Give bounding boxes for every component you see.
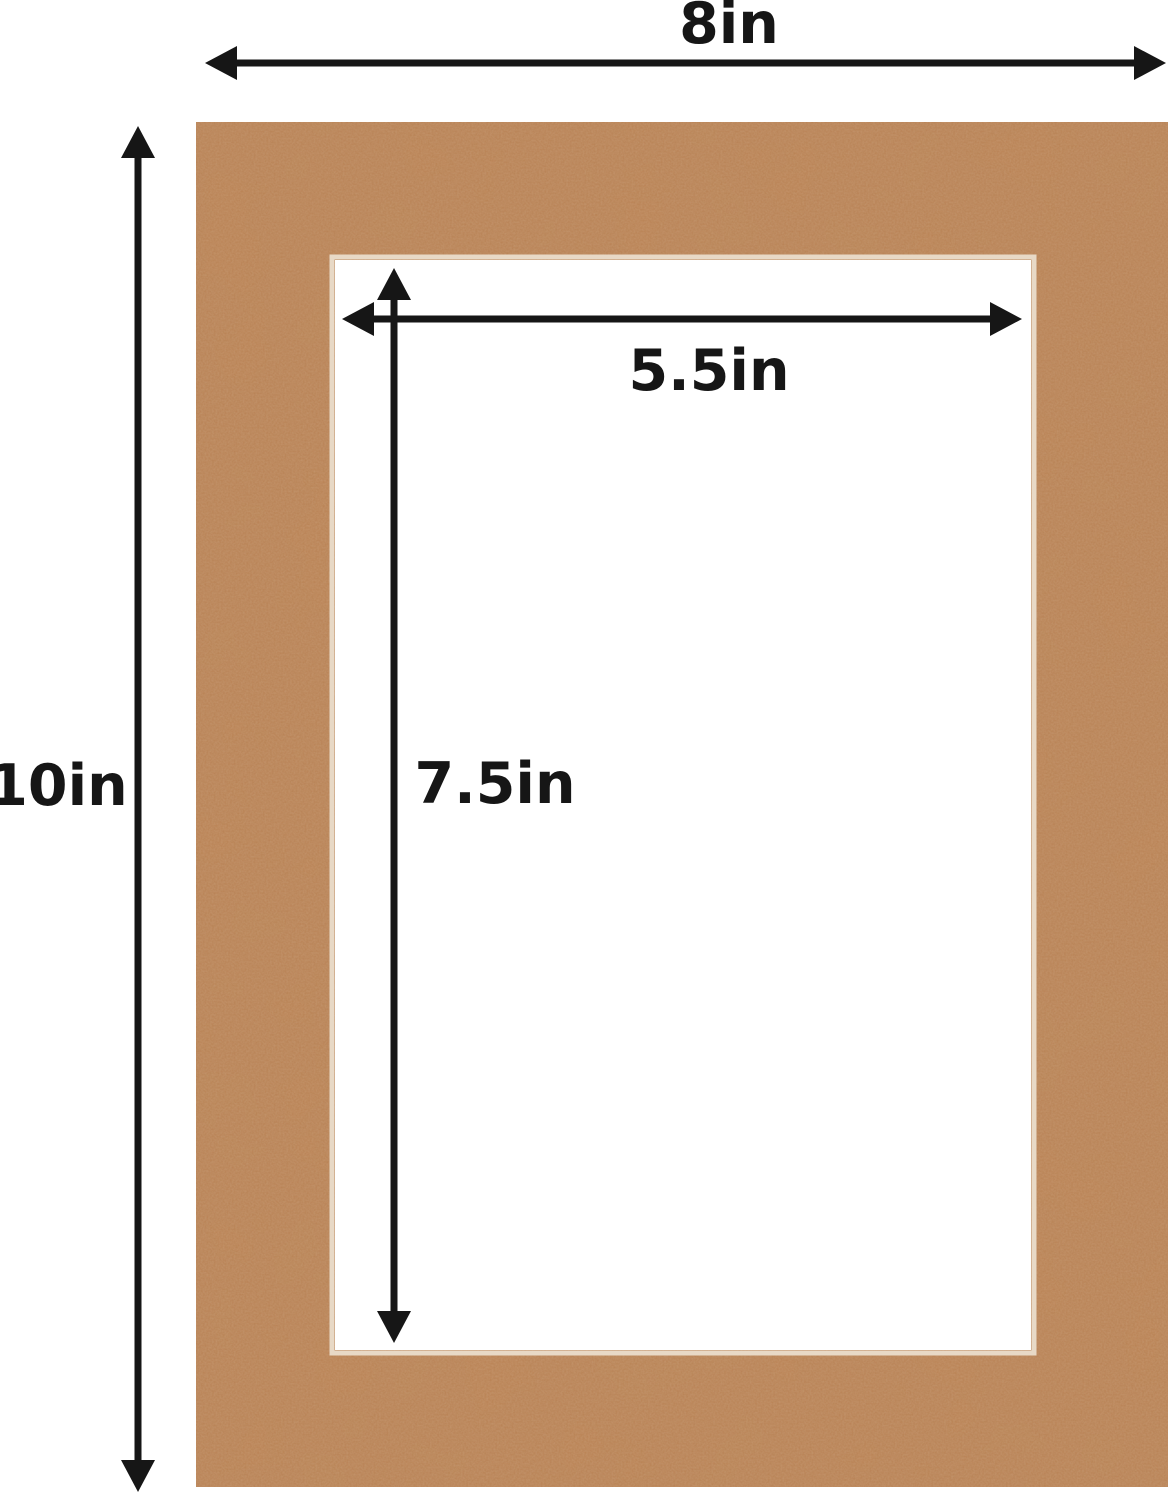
- outer-height-label: 10in: [0, 758, 128, 815]
- opening-height-label: 7.5in: [414, 756, 575, 813]
- mat-board: [196, 122, 1168, 1487]
- mat-dimension-diagram: 8in 10in 5.5in 7.5in: [0, 0, 1174, 1500]
- opening-width-label: 5.5in: [628, 343, 789, 400]
- outer-width-label: 8in: [679, 0, 779, 53]
